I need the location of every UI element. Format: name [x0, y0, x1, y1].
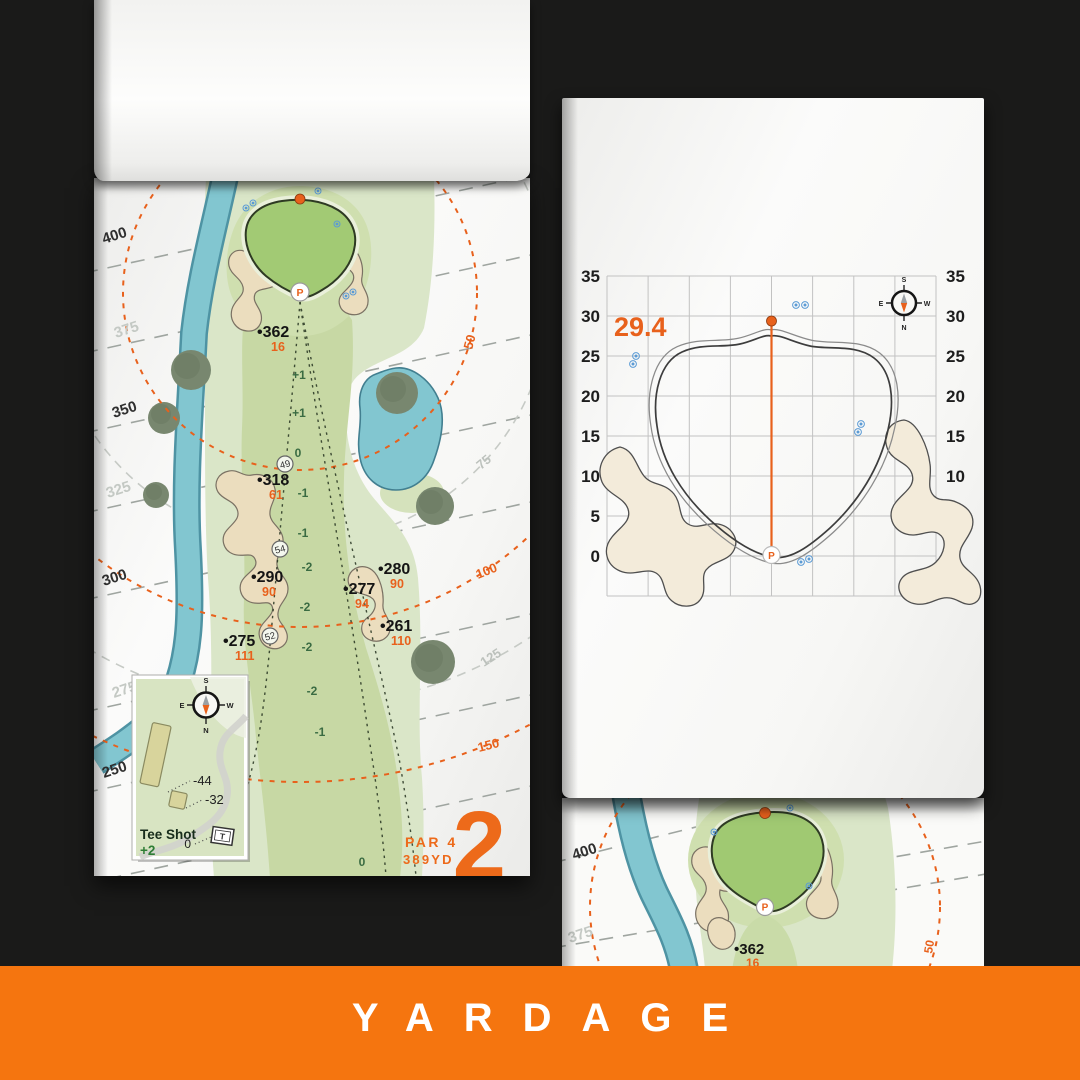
elevation-mark: 0 [359, 855, 366, 869]
tick-label: 35 [946, 267, 965, 286]
elevation-mark: -1 [315, 725, 326, 739]
marker-carry: 90 [390, 577, 404, 591]
bunker-left [600, 447, 736, 606]
elevation-mark: -2 [300, 600, 311, 614]
circled-number: 52 [262, 628, 278, 644]
marker-carry: 110 [391, 634, 411, 648]
tick-label: 25 [946, 347, 965, 366]
marker-carry: 16 [271, 340, 285, 354]
elevation-mark: -2 [302, 560, 313, 574]
elevation-mark: -2 [302, 640, 313, 654]
tee-box-forward [169, 791, 188, 810]
tick-label: 0 [591, 547, 600, 566]
tick-label: 5 [591, 507, 600, 526]
marker-distance: •280 [378, 561, 410, 578]
tick-label: 30 [581, 307, 600, 326]
elevation-mark: -1 [298, 486, 309, 500]
right-booklet: 35 30 25 20 15 10 5 0 35 30 25 20 15 10 … [562, 98, 984, 966]
marker-distance: •277 [343, 581, 375, 598]
sprinkler-icon [855, 421, 865, 436]
yardage-banner: YARDAGE [0, 966, 1080, 1080]
band-label: 375 [112, 318, 141, 342]
compass-n-label: N [901, 325, 906, 332]
arc-label: 50 [460, 333, 478, 351]
band-label: 400 [570, 840, 599, 864]
band-label: 375 [566, 923, 595, 947]
pin-dot [295, 194, 305, 204]
band-label: 300 [100, 566, 129, 590]
tee-shot-title: Tee Shot [140, 827, 197, 842]
marker-carry: 111 [235, 649, 255, 663]
marker-carry: 94 [355, 597, 369, 611]
tick-label: 15 [581, 427, 600, 446]
marker-distance: •275 [223, 633, 255, 650]
compass-s-label: S [902, 277, 907, 284]
compass-w-label: W [226, 701, 234, 710]
front-marker-label: P [768, 551, 775, 562]
front-marker: P [291, 283, 309, 301]
tick-label: 10 [946, 467, 965, 486]
tee-shot-inset: S N E W -44 -32 0 [132, 675, 250, 862]
hole-yardage-label: 389YD [403, 852, 454, 867]
next-hole-preview-page[interactable]: P 400 375 •362 16 50 [562, 798, 984, 966]
front-marker-label: P [296, 287, 303, 299]
par-label: PAR 4 [405, 834, 458, 850]
compass-s-label: S [203, 676, 208, 685]
banner-title: YARDAGE [322, 996, 758, 1041]
tick-label: 10 [581, 467, 600, 486]
river [626, 798, 684, 968]
axis-ticks-left: 35 30 25 20 15 10 5 0 [581, 267, 600, 566]
sprinkler-icon [630, 353, 640, 368]
arc-label: 150 [476, 735, 501, 755]
green-detail-page: 35 30 25 20 15 10 5 0 35 30 25 20 15 10 … [562, 98, 984, 798]
tee-offset-label: -32 [205, 792, 224, 807]
tick-label: 20 [946, 387, 965, 406]
compass-n-label: N [203, 726, 208, 735]
tick-label: 20 [581, 387, 600, 406]
page-curl[interactable] [94, 0, 530, 181]
tick-label: 30 [946, 307, 965, 326]
bunker-right [886, 420, 981, 604]
band-label: 350 [110, 398, 139, 422]
front-marker: P [763, 547, 780, 564]
elevation-mark: +1 [292, 406, 306, 420]
hole-map-page: 49 54 52 [94, 178, 530, 876]
hole-map: 49 54 52 [94, 178, 530, 876]
hole-number: 2 [453, 792, 506, 876]
yardage-book-scene: 49 54 52 [0, 0, 1080, 1080]
compass-e-label: E [179, 701, 184, 710]
arc-labels: 50 75 100 125 150 [460, 333, 503, 755]
elevation-mark: +1 [292, 368, 306, 382]
green-detail-chart: 35 30 25 20 15 10 5 0 35 30 25 20 15 10 … [562, 98, 984, 798]
circled-number: 49 [277, 456, 293, 472]
depth-pin-dot [767, 316, 777, 326]
green-bunkers [600, 420, 981, 606]
tree [171, 350, 211, 390]
tree [376, 372, 418, 414]
arc-label: 50 [921, 939, 937, 955]
compass-w-label: W [924, 301, 931, 308]
tick-label: 15 [946, 427, 965, 446]
depth-value: 29.4 [614, 312, 667, 342]
tree [416, 487, 454, 525]
tee-shot-elevation: +2 [140, 843, 155, 858]
elevation-mark: -2 [307, 684, 318, 698]
marker-carry: 90 [262, 585, 276, 599]
marker-distance: •290 [251, 569, 283, 586]
next-hole-map: P 400 375 •362 16 50 [562, 798, 984, 968]
green-outline [656, 336, 892, 558]
compass-e-label: E [879, 301, 884, 308]
sprinkler-icon [793, 302, 809, 309]
front-marker-label: P [762, 903, 769, 914]
circled-number: 54 [272, 541, 288, 557]
tree [411, 640, 455, 684]
band-label: 400 [100, 224, 129, 248]
band-label: 325 [104, 478, 133, 502]
tee-marker: T [211, 827, 234, 846]
elevation-mark: -1 [298, 526, 309, 540]
tee-offset-label: -44 [193, 773, 212, 788]
left-booklet: 49 54 52 [94, 0, 530, 876]
tree [143, 482, 169, 508]
arc-label: 125 [477, 645, 503, 669]
marker-carry: 61 [269, 488, 283, 502]
marker-distance: •261 [380, 618, 412, 635]
marker-distance: •362 [257, 324, 289, 341]
tick-label: 35 [581, 267, 600, 286]
distance-band-labels: 400 375 [566, 840, 599, 947]
pin-dot [760, 808, 771, 819]
elevation-mark: 0 [295, 446, 302, 460]
tick-label: 25 [581, 347, 600, 366]
front-marker: P [757, 899, 774, 916]
compass: S N E W [879, 277, 931, 332]
marker-distance: •318 [257, 472, 289, 489]
